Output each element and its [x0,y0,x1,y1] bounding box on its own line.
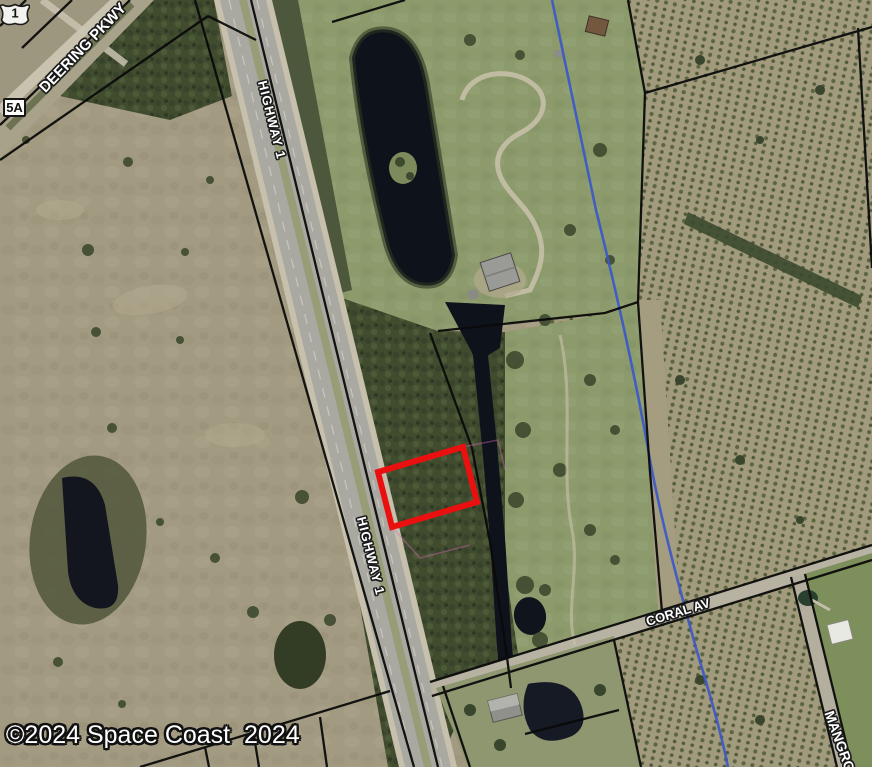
map-canvas[interactable]: 1 DEERING PKWY HIGHWAY 1 HIGHWAY 1 CORAL… [0,0,872,767]
exit-5a-badge: 5A [3,98,26,117]
copyright-watermark: ©2024 Space Coast 2024 [6,721,300,750]
route-shield-number: 1 [11,6,18,21]
aerial-imagery [0,0,872,767]
us-route-1-shield: 1 [0,0,30,26]
